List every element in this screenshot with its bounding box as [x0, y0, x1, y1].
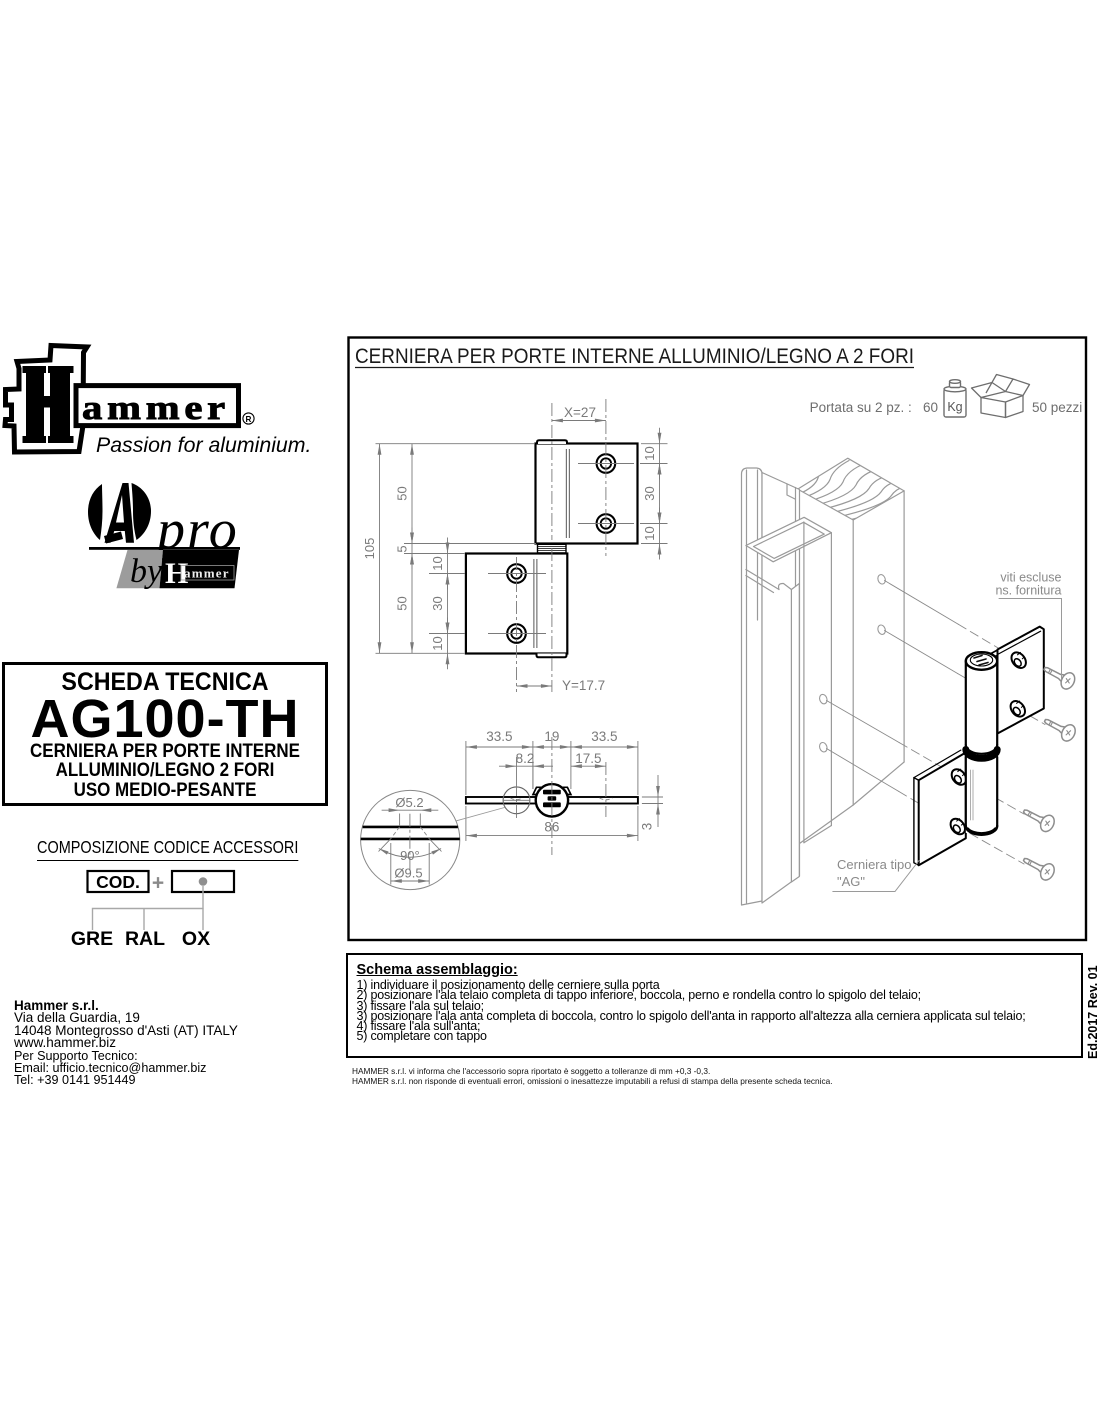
svg-text:10: 10: [642, 526, 657, 540]
svg-text:X=27: X=27: [564, 405, 596, 420]
svg-text:10: 10: [430, 556, 445, 570]
svg-text:10: 10: [430, 636, 445, 650]
svg-text:105: 105: [362, 538, 377, 560]
svg-text:Portata su 2 pz. : 60: Portata su 2 pz. : 60: [810, 400, 938, 415]
svg-text:10: 10: [642, 446, 657, 460]
svg-text:Kg: Kg: [947, 400, 962, 414]
svg-text:86: 86: [544, 820, 559, 835]
svg-text:8.2: 8.2: [516, 751, 535, 766]
svg-text:3: 3: [640, 823, 655, 831]
svg-text:50: 50: [395, 596, 410, 610]
svg-text:Ø9.5: Ø9.5: [394, 866, 422, 881]
svg-text:30: 30: [430, 596, 445, 610]
svg-text:Y=17.7: Y=17.7: [562, 678, 605, 693]
svg-text:Cerniera tipo: Cerniera tipo: [837, 857, 911, 872]
svg-text:viti escluse: viti escluse: [1000, 571, 1061, 585]
svg-text:90°: 90°: [400, 848, 420, 863]
svg-text:17.5: 17.5: [575, 751, 601, 766]
svg-text:30: 30: [642, 486, 657, 500]
svg-text:CERNIERA PER PORTE INTERNE ALL: CERNIERA PER PORTE INTERNE ALLUMINIO/LEG…: [355, 345, 914, 368]
svg-text:Ø5.2: Ø5.2: [395, 795, 423, 810]
svg-text:ns. fornitura: ns. fornitura: [995, 584, 1061, 598]
svg-text:50: 50: [395, 486, 410, 500]
svg-text:"AG": "AG": [837, 874, 865, 889]
svg-text:50 pezzi: 50 pezzi: [1032, 400, 1082, 415]
svg-text:33.5: 33.5: [591, 729, 617, 744]
svg-text:33.5: 33.5: [486, 729, 512, 744]
svg-text:19: 19: [544, 729, 559, 744]
svg-text:5: 5: [395, 545, 410, 552]
